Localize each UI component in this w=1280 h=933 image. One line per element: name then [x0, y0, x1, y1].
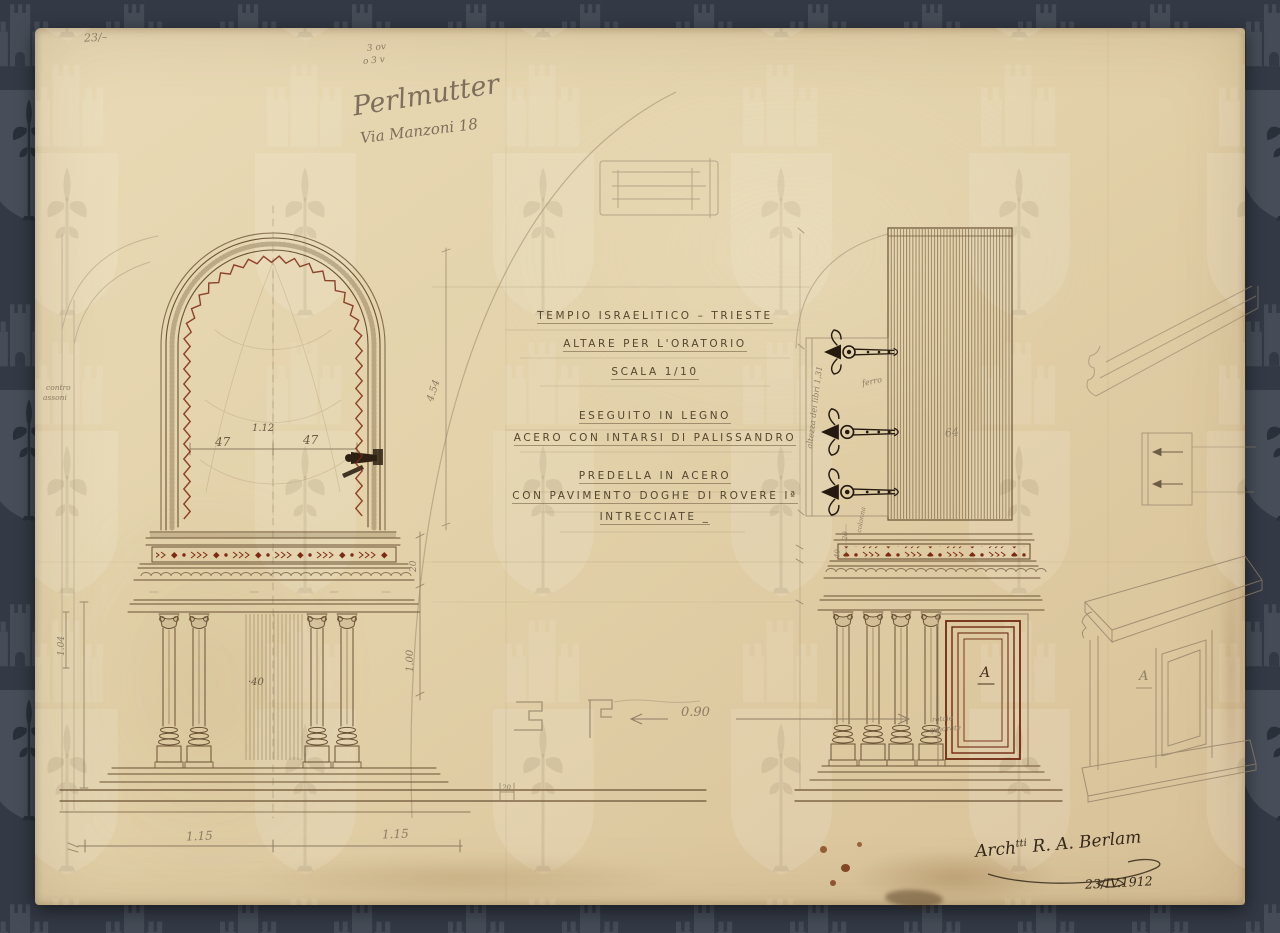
- paper-watermark: [35, 28, 1245, 905]
- drawing-sheet: [35, 28, 1245, 905]
- archival-scan: { "title_block": { "lines": [ "TEMPIO IS…: [0, 0, 1280, 933]
